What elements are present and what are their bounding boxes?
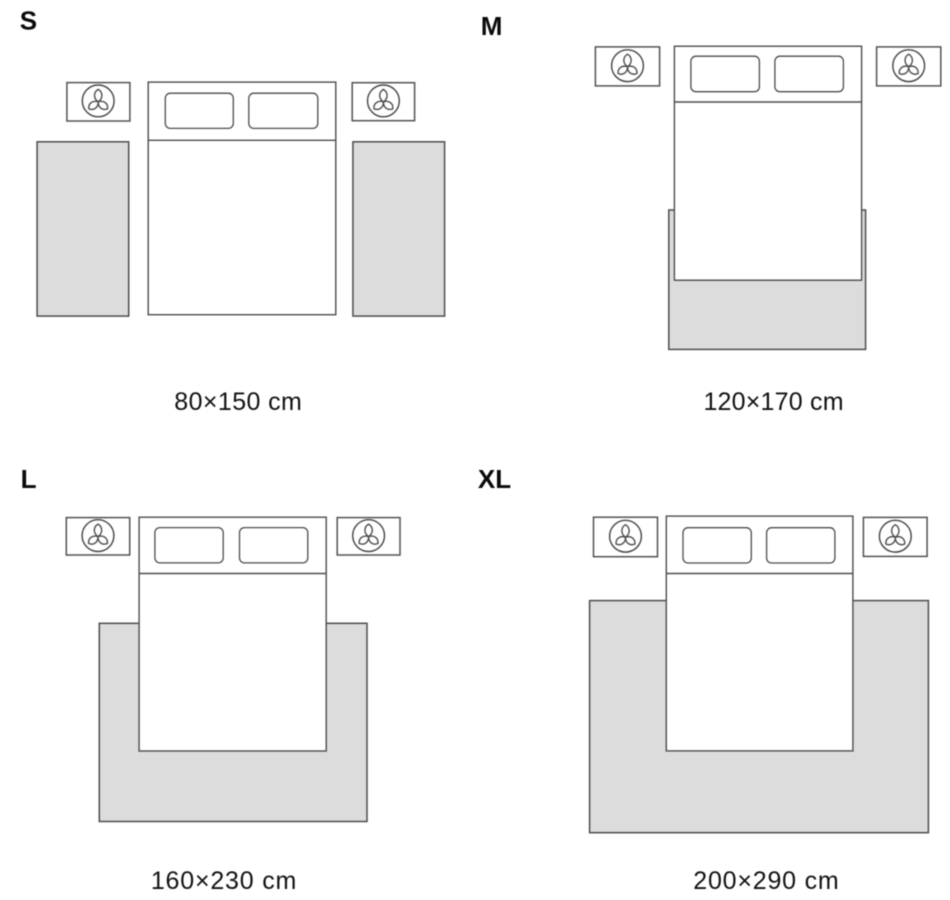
svg-text:L: L <box>21 464 37 494</box>
svg-text:S: S <box>20 6 37 36</box>
svg-text:160×230 cm: 160×230 cm <box>151 867 297 895</box>
svg-text:200×290 cm: 200×290 cm <box>693 867 839 895</box>
svg-text:XL: XL <box>478 464 511 494</box>
svg-text:120×170 cm: 120×170 cm <box>703 388 843 416</box>
svg-text:M: M <box>481 11 503 41</box>
svg-text:80×150 cm: 80×150 cm <box>174 388 302 416</box>
